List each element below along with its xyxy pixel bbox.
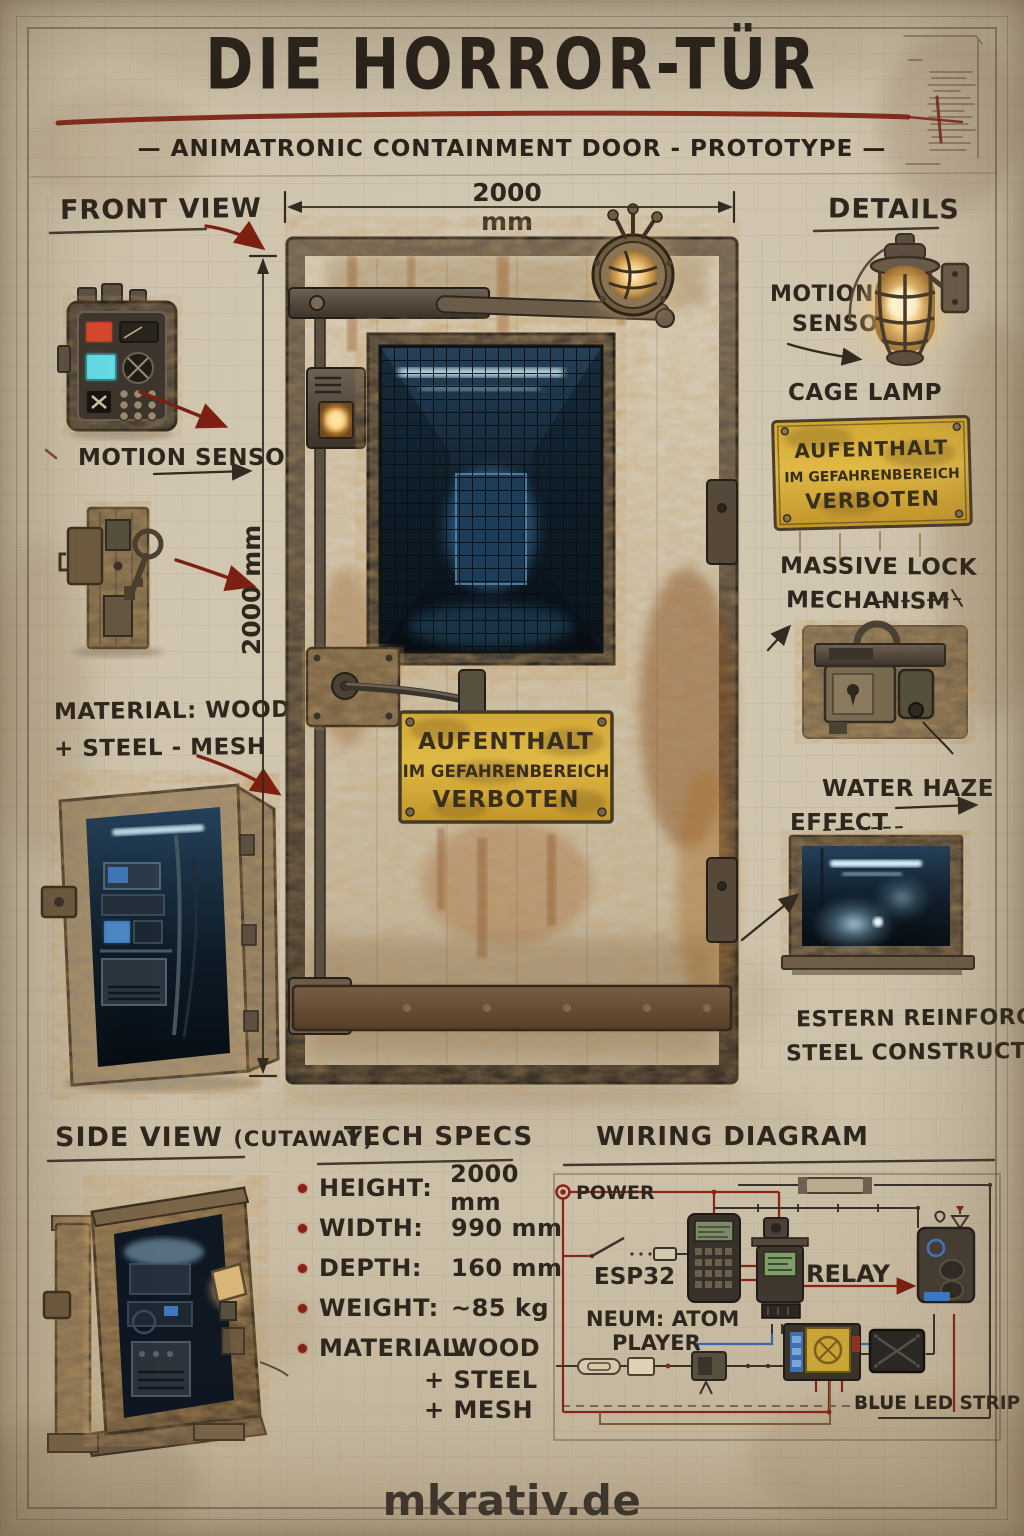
player-label-line1: NEUM: ATOM xyxy=(586,1307,739,1331)
tech-specs-list: HEIGHT: 2000 mm WIDTH: 990 mm DEPTH: 160… xyxy=(298,1174,578,1374)
power-node xyxy=(557,1186,570,1199)
spec-row-height: HEIGHT: 2000 mm xyxy=(298,1174,578,1202)
door-sign-line1: AUFENTHALT xyxy=(418,729,594,755)
spec-value: WOOD xyxy=(451,1334,540,1362)
door-height-dimension: 2000 mm xyxy=(237,515,267,665)
side-view-cutaway-illustration xyxy=(44,1172,289,1472)
wires-brown xyxy=(600,1380,830,1424)
open-door-cutaway-illustration xyxy=(42,775,277,1095)
construction-label-line1: ESTERN REINFORCED xyxy=(796,1005,1024,1033)
massive-lock-label-line1: MASSIVE LOCK xyxy=(780,553,977,581)
esp32-label: ESP32 xyxy=(594,1264,675,1290)
spec-value: ~85 kg xyxy=(451,1294,549,1322)
spec-row-material: MATERIAL: WOOD xyxy=(298,1334,578,1362)
amp-module xyxy=(918,1228,974,1302)
page-title: DIE HORROR-TÜR xyxy=(0,23,1024,106)
side-view-label: SIDE VIEW (CUTAWAY) xyxy=(55,1122,374,1153)
door-indicator-lamp xyxy=(307,368,365,448)
detail-sign-line1: AUFENTHALT xyxy=(794,435,949,463)
page-subtitle: — ANIMATRONIC CONTAINMENT DOOR - PROTOTY… xyxy=(0,136,1024,162)
detail-sign-line3: VERBOTEN xyxy=(805,486,940,514)
led-driver-box xyxy=(870,1330,924,1372)
spec-bullet xyxy=(298,1264,307,1273)
spec-material-cont1: + STEEL xyxy=(424,1366,538,1394)
massive-lock-label-line2: MECHANISM xyxy=(786,587,951,614)
small-relay-component xyxy=(692,1352,726,1380)
door-warning-sign: AUFENTHALT IM GEFAHRENBEREICH VERBOTEN xyxy=(400,712,612,822)
cage-lamp-illustration xyxy=(830,226,980,386)
spec-label: WEIGHT: xyxy=(319,1294,451,1322)
spec-row-width: WIDTH: 990 mm xyxy=(298,1214,578,1242)
spec-value: 990 mm xyxy=(451,1214,562,1242)
led-strip-label: BLUE LED STRIP xyxy=(854,1393,1020,1414)
material-label-line2: + STEEL - MESH xyxy=(54,734,267,762)
footer-url: mkrativ.de xyxy=(0,1476,1024,1525)
fuse xyxy=(798,1177,872,1194)
audio-module xyxy=(784,1324,860,1380)
poster: DIE HORROR-TÜR — ANIMATRONIC CONTAINMENT… xyxy=(0,0,1024,1536)
relay-module xyxy=(752,1218,808,1318)
spec-row-depth: DEPTH: 160 mm xyxy=(298,1254,578,1282)
spec-material-cont2: + MESH xyxy=(424,1396,533,1424)
tech-specs-title: TECH SPECS xyxy=(344,1122,533,1152)
warning-sign-detail-illustration: AUFENTHALT IM GEFAHRENBEREICH VERBOTEN xyxy=(770,415,975,540)
door-sign-line2: IM GEFAHRENBEREICH xyxy=(403,762,610,781)
side-view-title: SIDE VIEW xyxy=(55,1122,223,1153)
haze-window-illustration xyxy=(782,830,987,990)
panel-keypad xyxy=(120,390,157,421)
connector-component xyxy=(628,1358,654,1375)
esp32-board xyxy=(688,1214,740,1302)
capsule-component xyxy=(578,1359,620,1374)
esp32-switch xyxy=(590,1238,690,1260)
player-label-line2: PLAYER xyxy=(612,1331,701,1355)
door-sign-line3: VERBOTEN xyxy=(433,787,580,813)
door-bottom-strap xyxy=(289,978,731,1034)
spec-row-weight: WEIGHT: ~85 kg xyxy=(298,1294,578,1322)
construction-label-line2: STEEL CONSTRUCTION xyxy=(786,1038,1024,1066)
spec-label: MATERIAL: xyxy=(319,1334,451,1362)
spec-bullet xyxy=(298,1224,307,1233)
door-mesh-window xyxy=(368,334,614,664)
spec-bullet xyxy=(298,1304,307,1313)
door-width-dimension: 2000 mm xyxy=(442,178,572,236)
material-label-line1: MATERIAL: WOOD xyxy=(54,697,291,725)
power-label: POWER xyxy=(576,1182,655,1204)
key-lock-illustration xyxy=(60,500,195,665)
water-haze-label-line1: WATER HAZE xyxy=(822,776,994,802)
spec-value: 160 mm xyxy=(451,1254,562,1282)
main-door-illustration: AUFENTHALT IM GEFAHRENBEREICH VERBOTEN xyxy=(287,238,737,1083)
spec-label: WIDTH: xyxy=(319,1214,451,1242)
wiring-diagram-illustration: POWER ESP32 RELAY NEUM: ATOM PLAYER BLUE… xyxy=(548,1166,1008,1456)
motion-sensor-panel-illustration xyxy=(58,282,188,442)
relay-label: RELAY xyxy=(806,1260,890,1288)
lock-mechanism-illustration xyxy=(795,612,975,757)
details-label: DETAILS xyxy=(828,193,960,225)
wiring-title: WIRING DIAGRAM xyxy=(596,1122,869,1152)
spec-label: HEIGHT: xyxy=(319,1174,450,1202)
front-view-label: FRONT VIEW xyxy=(60,193,262,226)
motion-sensor-left-label: MOTION SENSOR, xyxy=(78,445,313,471)
spec-bullet xyxy=(298,1344,307,1353)
spec-bullet xyxy=(298,1184,307,1193)
spec-label: DEPTH: xyxy=(319,1254,451,1282)
